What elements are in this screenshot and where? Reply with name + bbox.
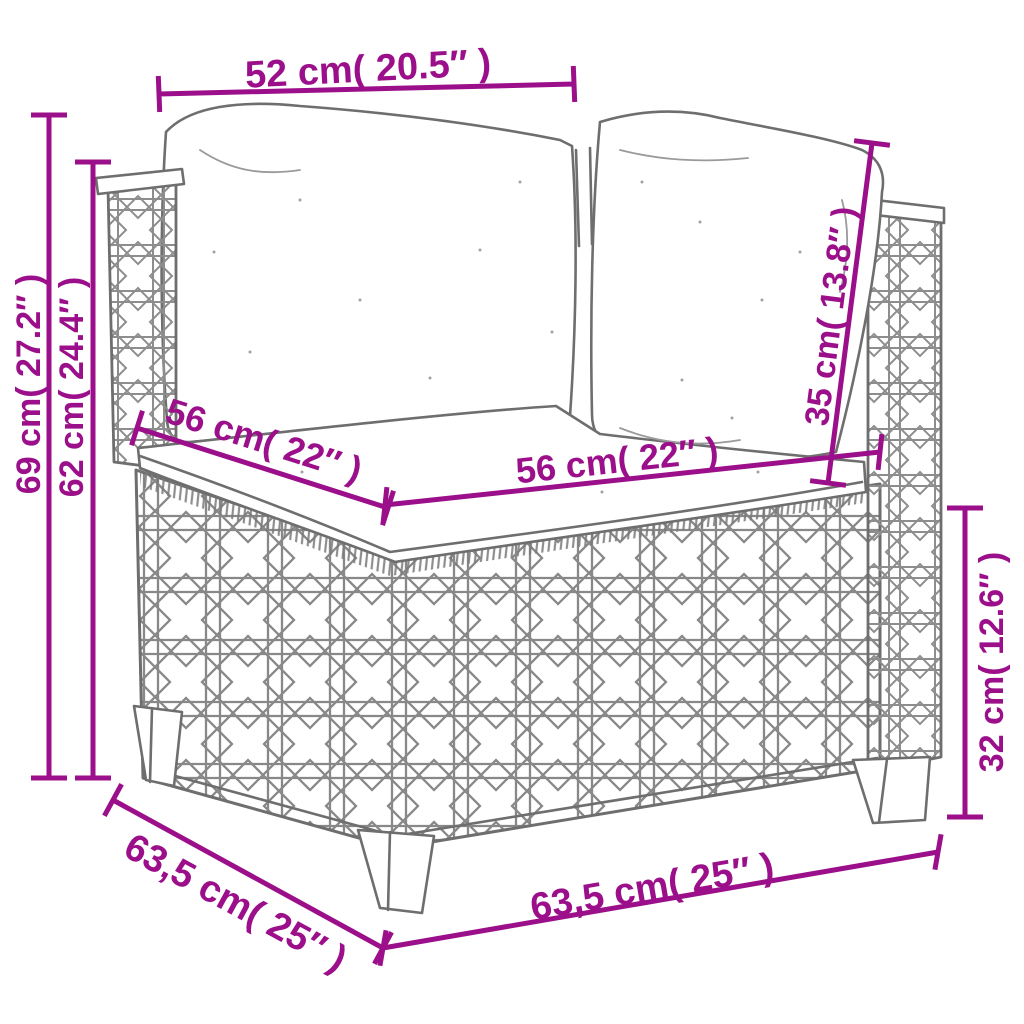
left-back-cushion: [162, 104, 576, 442]
left-leg: [134, 706, 182, 786]
dim-base-height-label: 32 cm( 12.6″ ): [973, 552, 1011, 772]
right-wicker-column: [868, 206, 941, 772]
furniture-illustration: [96, 104, 944, 913]
dim-total-width-label: 63,5 cm( 25″ ): [527, 846, 777, 929]
dim-total-height-label: 69 cm( 27.2″ ): [10, 274, 48, 494]
dim-total-depth-label: 63,5 cm( 25″ ): [117, 826, 353, 981]
right-leg: [853, 757, 930, 823]
dim-total-width: 63,5 cm( 25″ ): [380, 834, 941, 965]
dim-side-height-label: 62 cm( 24.4″ ): [53, 277, 91, 497]
back-frame-post: [576, 148, 592, 246]
dim-side-height: 62 cm( 24.4″ ): [53, 162, 111, 778]
product-dimension-diagram: 52 cm( 20.5″ ) 69 cm( 27.2″ ) 62 cm( 24.…: [0, 0, 1024, 1024]
dim-back-width: 52 cm( 20.5″ ): [158, 42, 574, 112]
sofa-dimension-drawing: 52 cm( 20.5″ ) 69 cm( 27.2″ ) 62 cm( 24.…: [0, 0, 1024, 1024]
front-leg: [358, 830, 434, 913]
dim-base-height: 32 cm( 12.6″ ): [947, 508, 1011, 817]
